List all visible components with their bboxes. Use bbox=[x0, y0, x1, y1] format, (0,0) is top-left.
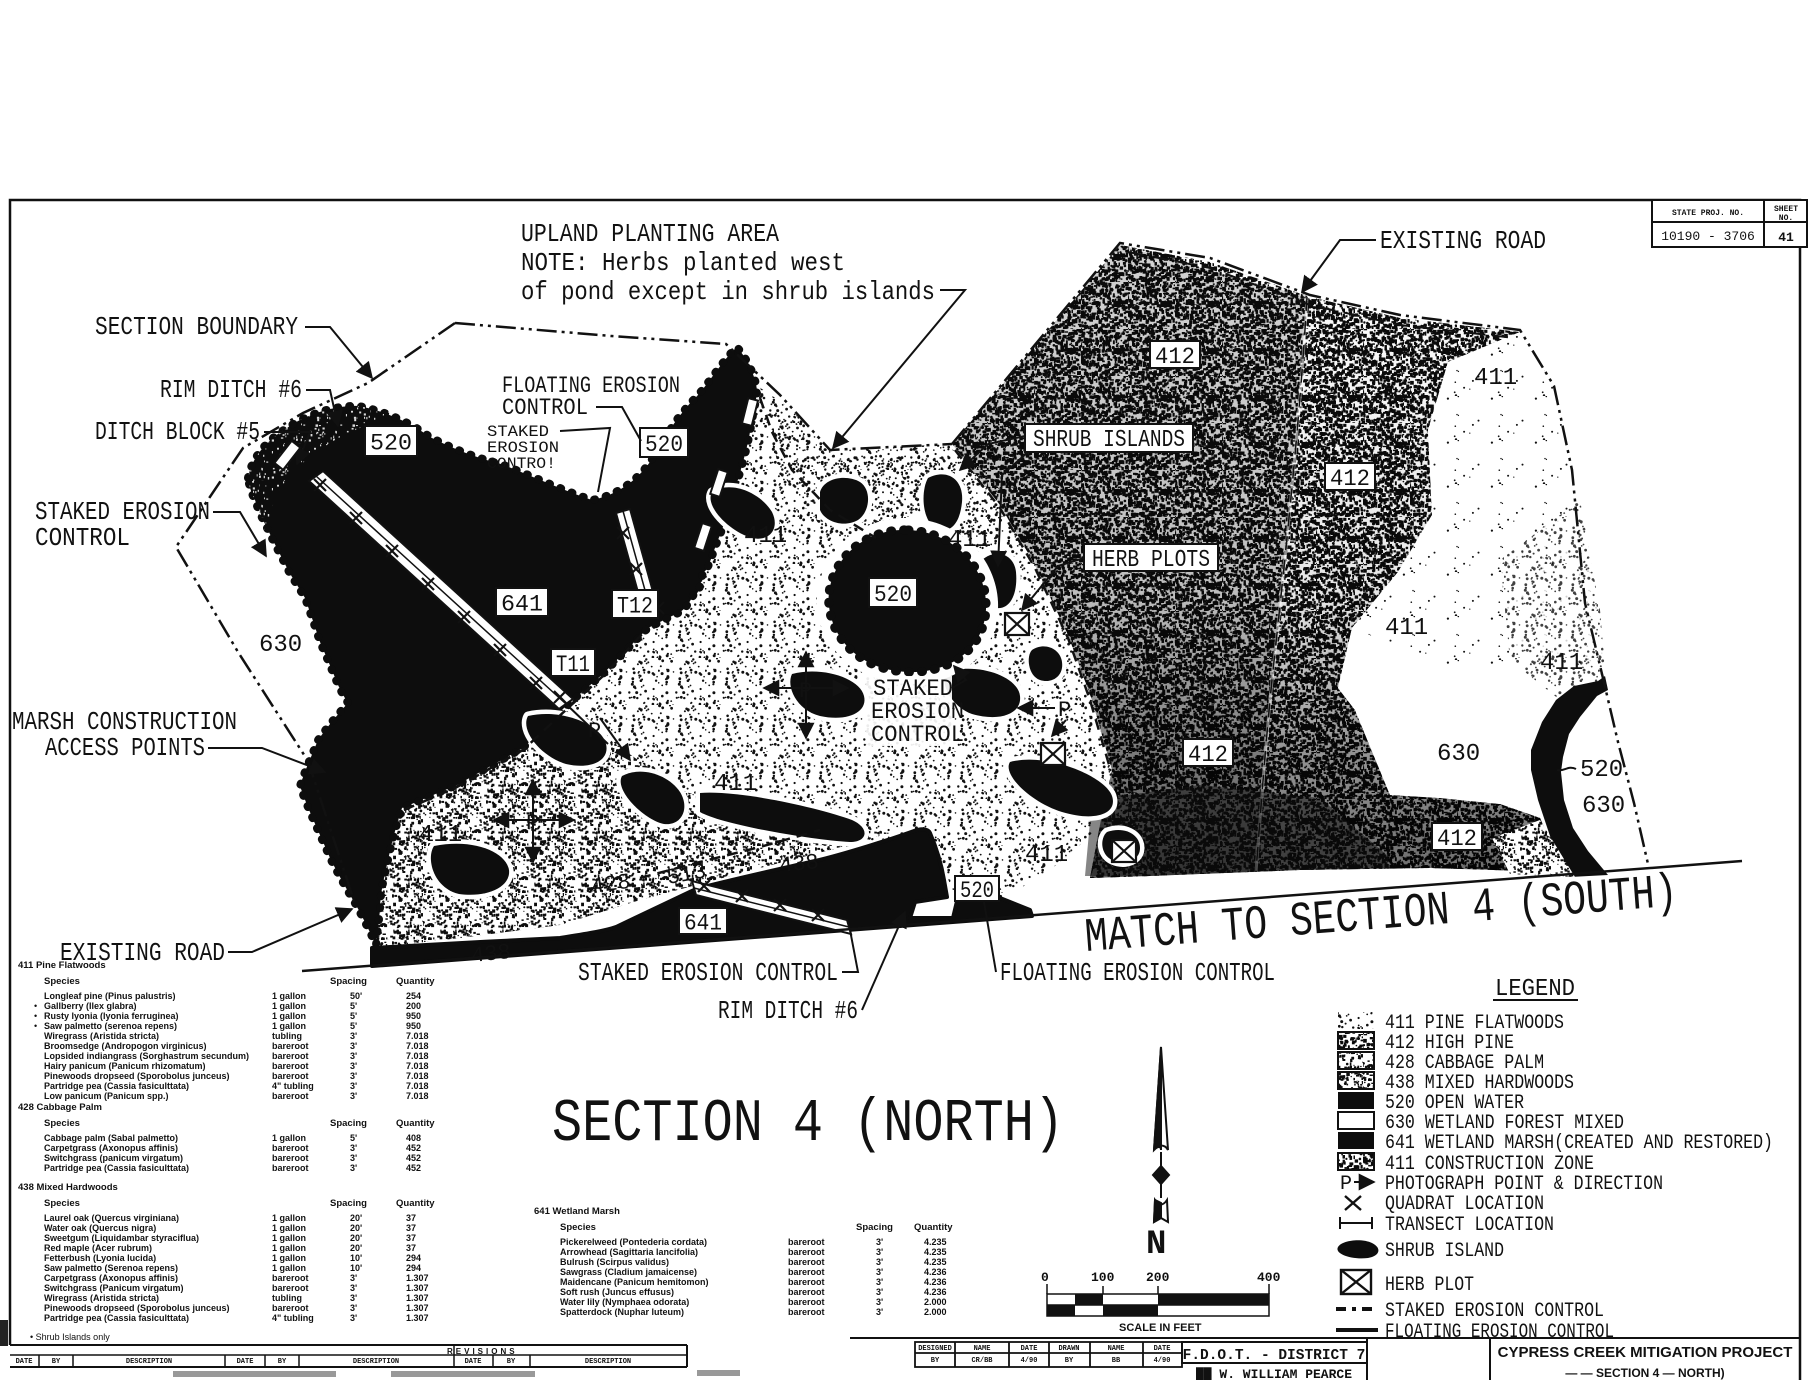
svg-text:20': 20' bbox=[350, 1223, 362, 1233]
svg-text:CONTROL: CONTROL bbox=[502, 395, 588, 421]
svg-text:428 Cabbage Palm: 428 Cabbage Palm bbox=[18, 1102, 102, 1113]
svg-text:950: 950 bbox=[406, 1011, 421, 1021]
svg-text:7.018: 7.018 bbox=[406, 1051, 429, 1061]
svg-text:NAME: NAME bbox=[974, 1345, 991, 1353]
svg-text:Quantity: Quantity bbox=[396, 1198, 435, 1209]
svg-text:3': 3' bbox=[876, 1277, 883, 1287]
svg-text:HERB PLOTS: HERB PLOTS bbox=[1092, 547, 1210, 574]
svg-text:520: 520 bbox=[874, 582, 912, 608]
svg-text:bareroot: bareroot bbox=[272, 1051, 309, 1061]
svg-text:452: 452 bbox=[406, 1143, 421, 1153]
svg-text:Maidencane (Panicum hemitomon): Maidencane (Panicum hemitomon) bbox=[560, 1277, 709, 1287]
svg-text:4" tubling: 4" tubling bbox=[272, 1313, 314, 1323]
svg-text:Red maple (Acer rubrum): Red maple (Acer rubrum) bbox=[44, 1243, 152, 1253]
svg-text:•: • bbox=[34, 1021, 37, 1031]
svg-text:412: 412 bbox=[1155, 344, 1195, 370]
svg-text:Lopsided indiangrass (Sorghast: Lopsided indiangrass (Sorghastrum secund… bbox=[44, 1051, 249, 1061]
svg-text:DESIGNED: DESIGNED bbox=[918, 1345, 952, 1353]
svg-text:411: 411 bbox=[419, 822, 462, 849]
svg-text:— — SECTION 4 — NORTH): — — SECTION 4 — NORTH) bbox=[1565, 1366, 1724, 1380]
svg-text:400: 400 bbox=[1257, 1270, 1281, 1285]
svg-text:4/90: 4/90 bbox=[1154, 1357, 1171, 1365]
svg-text:3': 3' bbox=[350, 1143, 357, 1153]
svg-text:Broomsedge (Andropogon virgini: Broomsedge (Andropogon virginicus) bbox=[44, 1041, 207, 1051]
svg-text:3': 3' bbox=[350, 1091, 357, 1101]
svg-text:CYPRESS CREEK MITIGATION PROJE: CYPRESS CREEK MITIGATION PROJECT bbox=[1498, 1344, 1793, 1361]
svg-text:NAME: NAME bbox=[1108, 1345, 1125, 1353]
svg-text:411: 411 bbox=[1474, 365, 1517, 392]
svg-text:bareroot: bareroot bbox=[788, 1267, 825, 1277]
svg-text:Species: Species bbox=[44, 1198, 80, 1209]
svg-text:P: P bbox=[799, 679, 812, 704]
svg-text:37: 37 bbox=[406, 1243, 416, 1253]
svg-text:Low panicum (Panicum spp.): Low panicum (Panicum spp.) bbox=[44, 1091, 169, 1101]
svg-text:Gallberry (Ilex glabra): Gallberry (Ilex glabra) bbox=[44, 1001, 137, 1011]
svg-text:1 gallon: 1 gallon bbox=[272, 1223, 306, 1233]
svg-text:41: 41 bbox=[1778, 230, 1794, 245]
svg-text:EXISTING ROAD: EXISTING ROAD bbox=[1380, 226, 1546, 256]
svg-text:641 WETLAND MARSH(CREATED AND: 641 WETLAND MARSH(CREATED AND RESTORED) bbox=[1385, 1132, 1773, 1155]
svg-text:BB: BB bbox=[1112, 1357, 1121, 1365]
svg-text:Saw palmetto (serenoa repens): Saw palmetto (serenoa repens) bbox=[44, 1021, 177, 1031]
svg-text:DATE: DATE bbox=[237, 1358, 254, 1366]
svg-text:DESCRIPTION: DESCRIPTION bbox=[585, 1358, 631, 1366]
svg-text:SCALE IN FEET: SCALE IN FEET bbox=[1119, 1322, 1202, 1334]
svg-text:630: 630 bbox=[259, 632, 302, 659]
svg-text:bareroot: bareroot bbox=[272, 1143, 309, 1153]
svg-text:438: 438 bbox=[470, 940, 512, 969]
svg-text:bareroot: bareroot bbox=[788, 1237, 825, 1247]
svg-text:SHRUB ISLAND: SHRUB ISLAND bbox=[1385, 1240, 1504, 1263]
svg-text:HERB PLOT: HERB PLOT bbox=[1385, 1274, 1474, 1297]
svg-text:411 Pine Flatwoods: 411 Pine Flatwoods bbox=[18, 960, 106, 971]
svg-text:SECTION BOUNDARY: SECTION BOUNDARY bbox=[95, 312, 298, 342]
svg-text:1 gallon: 1 gallon bbox=[272, 1253, 306, 1263]
svg-text:ACCESS POINTS: ACCESS POINTS bbox=[45, 733, 205, 763]
svg-text:bareroot: bareroot bbox=[788, 1287, 825, 1297]
svg-text:641: 641 bbox=[684, 910, 722, 936]
svg-text:411: 411 bbox=[714, 771, 757, 798]
svg-text:RIM DITCH #6: RIM DITCH #6 bbox=[718, 996, 858, 1026]
svg-text:Laurel oak (Quercus virginiana: Laurel oak (Quercus virginiana) bbox=[44, 1213, 179, 1223]
svg-text:P: P bbox=[1058, 698, 1071, 723]
svg-text:bareroot: bareroot bbox=[272, 1153, 309, 1163]
svg-text:Cabbage palm (Sabal palmetto): Cabbage palm (Sabal palmetto) bbox=[44, 1133, 178, 1143]
svg-text:3': 3' bbox=[350, 1061, 357, 1071]
svg-text:F.D.O.T. - DISTRICT 7: F.D.O.T. - DISTRICT 7 bbox=[1183, 1348, 1366, 1364]
svg-text:412: 412 bbox=[1437, 826, 1477, 852]
svg-text:CONTROL: CONTROL bbox=[871, 722, 964, 748]
svg-text:294: 294 bbox=[406, 1263, 421, 1273]
svg-text:bareroot: bareroot bbox=[272, 1163, 309, 1173]
svg-text:SECTION 4 (NORTH): SECTION 4 (NORTH) bbox=[552, 1091, 1064, 1159]
svg-text:Arrowhead (Sagittaria lancifol: Arrowhead (Sagittaria lancifolia) bbox=[560, 1247, 698, 1257]
svg-text:3': 3' bbox=[350, 1051, 357, 1061]
svg-text:0: 0 bbox=[1041, 1270, 1049, 1285]
svg-text:3': 3' bbox=[876, 1297, 883, 1307]
svg-text:254: 254 bbox=[406, 991, 421, 1001]
svg-text:Partridge pea (Cassia fasicult: Partridge pea (Cassia fasiculttata) bbox=[44, 1313, 189, 1323]
svg-text:520: 520 bbox=[645, 432, 683, 458]
svg-text:950: 950 bbox=[406, 1021, 421, 1031]
svg-text:1 gallon: 1 gallon bbox=[272, 1243, 306, 1253]
svg-text:438 Mixed Hardwoods: 438 Mixed Hardwoods bbox=[18, 1182, 118, 1193]
svg-text:of pond except in shrub island: of pond except in shrub islands bbox=[521, 277, 935, 307]
svg-text:bareroot: bareroot bbox=[272, 1041, 309, 1051]
svg-text:412: 412 bbox=[1188, 742, 1228, 768]
svg-text:7.018: 7.018 bbox=[406, 1031, 429, 1041]
svg-text:200: 200 bbox=[406, 1001, 421, 1011]
svg-text:50': 50' bbox=[350, 991, 362, 1001]
svg-text:10': 10' bbox=[350, 1253, 362, 1263]
svg-text:2.000: 2.000 bbox=[924, 1307, 947, 1317]
svg-text:411: 411 bbox=[948, 527, 991, 554]
svg-text:7.018: 7.018 bbox=[406, 1091, 429, 1101]
svg-text:520: 520 bbox=[370, 430, 412, 456]
svg-text:BY: BY bbox=[931, 1357, 940, 1365]
svg-text:DATE: DATE bbox=[1021, 1345, 1038, 1353]
svg-text:10190 - 3706: 10190 - 3706 bbox=[1661, 229, 1755, 244]
svg-text:FLOATING EROSION CONTROL: FLOATING EROSION CONTROL bbox=[1000, 958, 1275, 988]
svg-text:3': 3' bbox=[350, 1273, 357, 1283]
svg-text:BY: BY bbox=[507, 1358, 516, 1366]
svg-text:5': 5' bbox=[350, 1011, 357, 1021]
svg-text:CR/BB: CR/BB bbox=[971, 1357, 993, 1365]
svg-text:Partridge pea (Cassia fasicult: Partridge pea (Cassia fasiculttata) bbox=[44, 1081, 189, 1091]
svg-text:Spacing: Spacing bbox=[330, 1118, 367, 1129]
svg-text:T12: T12 bbox=[617, 593, 653, 619]
svg-text:bareroot: bareroot bbox=[272, 1061, 309, 1071]
svg-text:3': 3' bbox=[350, 1303, 357, 1313]
svg-text:5': 5' bbox=[350, 1001, 357, 1011]
svg-text:bareroot: bareroot bbox=[272, 1283, 309, 1293]
svg-text:3': 3' bbox=[876, 1307, 883, 1317]
svg-text:5': 5' bbox=[350, 1021, 357, 1031]
svg-text:630: 630 bbox=[1437, 741, 1480, 768]
svg-text:bareroot: bareroot bbox=[788, 1307, 825, 1317]
svg-text:FLOATING EROSION CONTROL: FLOATING EROSION CONTROL bbox=[1385, 1321, 1614, 1344]
svg-text:1 gallon: 1 gallon bbox=[272, 1213, 306, 1223]
svg-text:•: • bbox=[34, 1011, 37, 1021]
svg-text:Longleaf pine (Pinus palustris: Longleaf pine (Pinus palustris) bbox=[44, 991, 176, 1001]
svg-text:1.307: 1.307 bbox=[406, 1303, 429, 1313]
svg-text:Bulrush (Scirpus validus): Bulrush (Scirpus validus) bbox=[560, 1257, 669, 1267]
svg-text:37: 37 bbox=[406, 1233, 416, 1243]
svg-text:BY: BY bbox=[1065, 1357, 1074, 1365]
svg-text:7.018: 7.018 bbox=[406, 1041, 429, 1051]
svg-text:P: P bbox=[1340, 1173, 1352, 1196]
svg-text:SHEET: SHEET bbox=[1774, 205, 1798, 214]
svg-text:Pinewoods dropseed (Sporobolus: Pinewoods dropseed (Sporobolus junceus) bbox=[44, 1071, 230, 1081]
svg-text:4.236: 4.236 bbox=[924, 1277, 947, 1287]
svg-text:bareroot: bareroot bbox=[788, 1257, 825, 1267]
svg-text:Species: Species bbox=[44, 1118, 80, 1129]
svg-text:N: N bbox=[1146, 1226, 1166, 1264]
svg-text:7.018: 7.018 bbox=[406, 1061, 429, 1071]
svg-text:bareroot: bareroot bbox=[272, 1273, 309, 1283]
svg-text:DESCRIPTION: DESCRIPTION bbox=[353, 1358, 399, 1366]
svg-text:7.018: 7.018 bbox=[406, 1081, 429, 1091]
svg-text:3': 3' bbox=[876, 1257, 883, 1267]
svg-text:1.307: 1.307 bbox=[406, 1283, 429, 1293]
svg-text:tubling: tubling bbox=[272, 1293, 302, 1303]
svg-text:QUADRAT LOCATION: QUADRAT LOCATION bbox=[1385, 1193, 1544, 1216]
svg-text:4.236: 4.236 bbox=[924, 1287, 947, 1297]
svg-text:4.235: 4.235 bbox=[924, 1247, 947, 1257]
svg-text:bareroot: bareroot bbox=[788, 1297, 825, 1307]
svg-text:520: 520 bbox=[960, 878, 994, 904]
svg-text:T11: T11 bbox=[556, 652, 590, 678]
svg-text:200: 200 bbox=[1146, 1270, 1170, 1285]
svg-text:37: 37 bbox=[406, 1213, 416, 1223]
svg-text:20': 20' bbox=[350, 1233, 362, 1243]
svg-text:3': 3' bbox=[350, 1293, 357, 1303]
svg-text:3': 3' bbox=[876, 1287, 883, 1297]
svg-text:NO.: NO. bbox=[1779, 214, 1793, 223]
svg-text:4.236: 4.236 bbox=[924, 1267, 947, 1277]
svg-text:Quantity: Quantity bbox=[396, 976, 435, 987]
svg-text:294: 294 bbox=[406, 1253, 421, 1263]
svg-text:DESCRIPTION: DESCRIPTION bbox=[126, 1358, 172, 1366]
svg-text:2.000: 2.000 bbox=[924, 1297, 947, 1307]
svg-text:3': 3' bbox=[350, 1283, 357, 1293]
svg-text:bareroot: bareroot bbox=[272, 1303, 309, 1313]
svg-text:1 gallon: 1 gallon bbox=[272, 1133, 306, 1143]
svg-text:Species: Species bbox=[560, 1222, 596, 1233]
svg-text:5': 5' bbox=[350, 1133, 357, 1143]
svg-text:3': 3' bbox=[350, 1153, 357, 1163]
svg-text:3': 3' bbox=[350, 1163, 357, 1173]
svg-text:520: 520 bbox=[1580, 757, 1623, 784]
svg-text:3': 3' bbox=[876, 1267, 883, 1277]
svg-text:Rusty lyonia (lyonia ferrugine: Rusty lyonia (lyonia ferruginea) bbox=[44, 1011, 179, 1021]
svg-text:STAKED EROSION CONTROL: STAKED EROSION CONTROL bbox=[578, 958, 838, 988]
svg-text:100: 100 bbox=[1091, 1270, 1115, 1285]
svg-text:37: 37 bbox=[406, 1223, 416, 1233]
svg-text:UPLAND PLANTING AREA: UPLAND PLANTING AREA bbox=[521, 219, 779, 249]
svg-text:1 gallon: 1 gallon bbox=[272, 1021, 306, 1031]
svg-text:STAKED EROSION CONTROL: STAKED EROSION CONTROL bbox=[1385, 1300, 1604, 1323]
svg-text:Quantity: Quantity bbox=[396, 1118, 435, 1129]
svg-text:1 gallon: 1 gallon bbox=[272, 991, 306, 1001]
svg-text:20': 20' bbox=[350, 1213, 362, 1223]
svg-text:641: 641 bbox=[501, 591, 543, 617]
svg-text:██ W. WILLIAM PEARCE: ██ W. WILLIAM PEARCE bbox=[1196, 1367, 1352, 1380]
svg-text:Spatterdock (Nuphar luteum): Spatterdock (Nuphar luteum) bbox=[560, 1307, 684, 1317]
svg-text:BY: BY bbox=[52, 1358, 61, 1366]
svg-text:411: 411 bbox=[1025, 842, 1068, 869]
svg-text:452: 452 bbox=[406, 1163, 421, 1173]
svg-text:Species: Species bbox=[44, 976, 80, 987]
svg-text:1.307: 1.307 bbox=[406, 1293, 429, 1303]
svg-text:CONTROL: CONTROL bbox=[35, 523, 130, 553]
svg-text:SHRUB ISLANDS: SHRUB ISLANDS bbox=[1033, 427, 1185, 454]
svg-text:NOTE: Herbs planted west: NOTE: Herbs planted west bbox=[521, 248, 845, 278]
svg-text:411: 411 bbox=[1540, 650, 1583, 677]
svg-text:RIM DITCH #6: RIM DITCH #6 bbox=[160, 375, 302, 405]
svg-text:Quantity: Quantity bbox=[914, 1222, 953, 1233]
svg-text:3': 3' bbox=[350, 1031, 357, 1041]
svg-text:DITCH BLOCK #5: DITCH BLOCK #5 bbox=[95, 417, 260, 447]
svg-text:4/90: 4/90 bbox=[1021, 1357, 1038, 1365]
svg-text:Saw palmetto (Serenoa repens): Saw palmetto (Serenoa repens) bbox=[44, 1263, 178, 1273]
svg-text:Partridge pea (Cassia fasicult: Partridge pea (Cassia fasiculttata) bbox=[44, 1163, 189, 1173]
svg-text:tubling: tubling bbox=[272, 1031, 302, 1041]
svg-text:20': 20' bbox=[350, 1243, 362, 1253]
svg-text:Water lily (Nymphaea odorata): Water lily (Nymphaea odorata) bbox=[560, 1297, 689, 1307]
svg-text:Pinewoods dropseed (Sporobolus: Pinewoods dropseed (Sporobolus junceus) bbox=[44, 1303, 230, 1313]
svg-text:10': 10' bbox=[350, 1263, 362, 1273]
svg-text:1 gallon: 1 gallon bbox=[272, 1263, 306, 1273]
svg-text:1.307: 1.307 bbox=[406, 1313, 429, 1323]
svg-text:bareroot: bareroot bbox=[788, 1277, 825, 1287]
svg-text:Spacing: Spacing bbox=[330, 1198, 367, 1209]
svg-text:STATE PROJ. NO.: STATE PROJ. NO. bbox=[1672, 209, 1744, 218]
svg-text:3': 3' bbox=[876, 1237, 883, 1247]
svg-text:Spacing: Spacing bbox=[856, 1222, 893, 1233]
svg-text:3': 3' bbox=[350, 1041, 357, 1051]
svg-text:Wiregrass (Aristida stricta): Wiregrass (Aristida stricta) bbox=[44, 1031, 159, 1041]
svg-text:3': 3' bbox=[350, 1081, 357, 1091]
svg-text:4" tubling: 4" tubling bbox=[272, 1081, 314, 1091]
svg-text:438: 438 bbox=[778, 850, 820, 879]
svg-text:Carpetgrass (Axonopus affinis): Carpetgrass (Axonopus affinis) bbox=[44, 1143, 178, 1153]
svg-text:4.235: 4.235 bbox=[924, 1257, 947, 1267]
svg-text:bareroot: bareroot bbox=[272, 1071, 309, 1081]
svg-text:Sweetgum (Liquidambar styracif: Sweetgum (Liquidambar styraciflua) bbox=[44, 1233, 199, 1243]
svg-text:411: 411 bbox=[744, 523, 787, 550]
svg-text:Sawgrass (Cladium jamaicense): Sawgrass (Cladium jamaicense) bbox=[560, 1267, 697, 1277]
svg-text:408: 408 bbox=[406, 1133, 421, 1143]
svg-text:411: 411 bbox=[1385, 615, 1428, 642]
svg-text:3': 3' bbox=[350, 1071, 357, 1081]
svg-text:1 gallon: 1 gallon bbox=[272, 1011, 306, 1021]
svg-text:Carpetgrass (Axonopus affinis): Carpetgrass (Axonopus affinis) bbox=[44, 1273, 178, 1283]
svg-text:Hairy panicum (Panicum rhizoma: Hairy panicum (Panicum rhizomatum) bbox=[44, 1061, 206, 1071]
svg-text:bareroot: bareroot bbox=[788, 1247, 825, 1257]
svg-text:Soft rush (Juncus effusus): Soft rush (Juncus effusus) bbox=[560, 1287, 674, 1297]
svg-text:DATE: DATE bbox=[465, 1358, 482, 1366]
svg-text:4.235: 4.235 bbox=[924, 1237, 947, 1247]
svg-text:BY: BY bbox=[278, 1358, 287, 1366]
svg-text:Wiregrass (Aristida stricta): Wiregrass (Aristida stricta) bbox=[44, 1293, 159, 1303]
svg-text:1 gallon: 1 gallon bbox=[272, 1233, 306, 1243]
svg-text:Fetterbush (Lyonia lucida): Fetterbush (Lyonia lucida) bbox=[44, 1253, 156, 1263]
svg-text:1.307: 1.307 bbox=[406, 1273, 429, 1283]
svg-text:452: 452 bbox=[406, 1153, 421, 1163]
svg-text:1 gallon: 1 gallon bbox=[272, 1001, 306, 1011]
svg-text:bareroot: bareroot bbox=[272, 1091, 309, 1101]
svg-text:Pickerelweed (Pontederia corda: Pickerelweed (Pontederia cordata) bbox=[560, 1237, 707, 1247]
svg-text:TRANSECT LOCATION: TRANSECT LOCATION bbox=[1385, 1214, 1554, 1237]
svg-text:3': 3' bbox=[876, 1247, 883, 1257]
svg-text:Spacing: Spacing bbox=[330, 976, 367, 987]
svg-text:641 Wetland Marsh: 641 Wetland Marsh bbox=[534, 1206, 620, 1217]
svg-text:DATE: DATE bbox=[1154, 1345, 1171, 1353]
svg-text:DRAWN: DRAWN bbox=[1058, 1345, 1079, 1353]
svg-text:Water oak (Quercus nigra): Water oak (Quercus nigra) bbox=[44, 1223, 156, 1233]
svg-text:3': 3' bbox=[350, 1313, 357, 1323]
svg-text:630: 630 bbox=[1582, 793, 1625, 820]
svg-text:•: • bbox=[34, 1001, 37, 1011]
svg-text:CONTRO!: CONTRO! bbox=[487, 455, 556, 473]
svg-text:• Shrub Islands only: • Shrub Islands only bbox=[30, 1332, 110, 1342]
svg-text:Switchgrass (panicum virgatum): Switchgrass (panicum virgatum) bbox=[44, 1153, 183, 1163]
svg-text:7.018: 7.018 bbox=[406, 1071, 429, 1081]
svg-text:LEGEND: LEGEND bbox=[1495, 976, 1575, 1003]
svg-text:412: 412 bbox=[1330, 466, 1370, 492]
svg-text:P: P bbox=[526, 811, 539, 836]
svg-text:Switchgrass (Panicum virgatum): Switchgrass (Panicum virgatum) bbox=[44, 1283, 184, 1293]
svg-text:DATE: DATE bbox=[16, 1358, 33, 1366]
